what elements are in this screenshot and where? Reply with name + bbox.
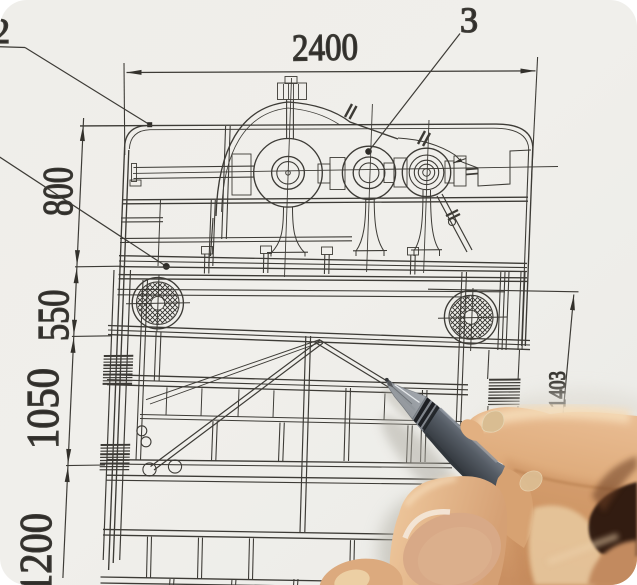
svg-text:800: 800 <box>35 167 82 216</box>
svg-text:1200: 1200 <box>11 513 62 585</box>
svg-text:2400: 2400 <box>292 26 359 69</box>
svg-text:1050: 1050 <box>18 368 69 449</box>
svg-text:3: 3 <box>460 0 478 40</box>
svg-text:2: 2 <box>0 11 10 51</box>
svg-text:550: 550 <box>29 290 78 341</box>
